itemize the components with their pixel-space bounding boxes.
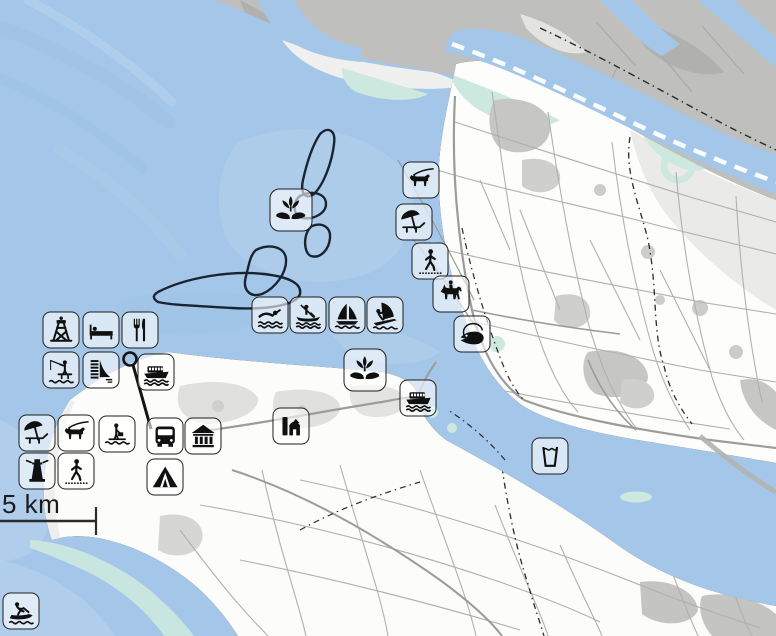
dog-walking-south-icon xyxy=(58,415,95,452)
boundary-lines xyxy=(462,28,776,424)
landing-stage-icon xyxy=(99,416,136,453)
industrial-area xyxy=(214,0,776,202)
accommodation-icon xyxy=(83,312,120,349)
sea-texture xyxy=(0,0,180,255)
horse-riding-icon xyxy=(433,276,470,313)
canoeing-icon xyxy=(290,297,327,334)
dog-walking-north-icon xyxy=(403,162,440,199)
fishing-spot-icon xyxy=(454,316,491,353)
restaurant-icon xyxy=(122,312,159,349)
jet-skiing-icon xyxy=(3,593,40,630)
drinking-water-icon xyxy=(532,438,569,475)
fishing-jetty-icon xyxy=(43,352,80,389)
windsurfing-icon xyxy=(367,297,404,334)
walking-route-north-icon xyxy=(412,243,449,280)
ferry-east-icon xyxy=(400,380,437,417)
museum-icon xyxy=(185,418,222,455)
camping-icon xyxy=(147,459,184,496)
walking-route-south-icon xyxy=(58,453,95,490)
dam-sluice-icon xyxy=(83,352,120,389)
beach-south-icon xyxy=(19,415,56,452)
nature-reserve-north-icon xyxy=(270,189,313,232)
sailing-icon xyxy=(329,297,366,334)
ferry-west-icon xyxy=(138,354,175,391)
nature-reserve-south-icon xyxy=(344,349,387,392)
channel-marking xyxy=(452,44,776,182)
island-detail xyxy=(437,74,776,448)
map-canvas[interactable]: 5 km xyxy=(0,0,776,636)
island-land xyxy=(439,61,776,463)
swimming-icon xyxy=(252,297,289,334)
river-channel xyxy=(446,29,776,194)
observation-tower-icon xyxy=(43,312,80,349)
lighthouse-icon xyxy=(19,453,56,490)
fort-monument-icon xyxy=(273,408,310,445)
scale-bar-label: 5 km xyxy=(2,489,60,520)
beach-north-icon xyxy=(396,204,433,241)
bus-stop-icon xyxy=(147,418,184,455)
industrial-detail xyxy=(240,0,744,110)
